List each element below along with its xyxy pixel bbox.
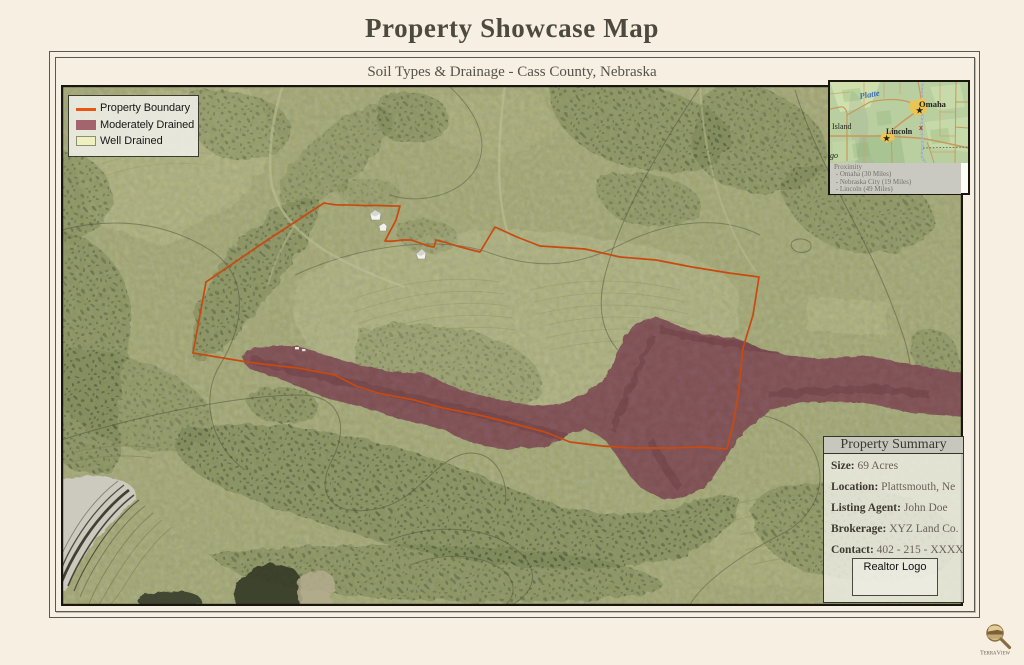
svg-text:TERRAVIEW: TERRAVIEW (980, 649, 1011, 656)
svg-text:Omaha: Omaha (919, 99, 947, 109)
svg-text:go: go (830, 151, 838, 160)
svg-text:x: x (919, 125, 923, 132)
svg-text:Island: Island (832, 122, 852, 131)
svg-text:Lincoln: Lincoln (886, 127, 913, 136)
